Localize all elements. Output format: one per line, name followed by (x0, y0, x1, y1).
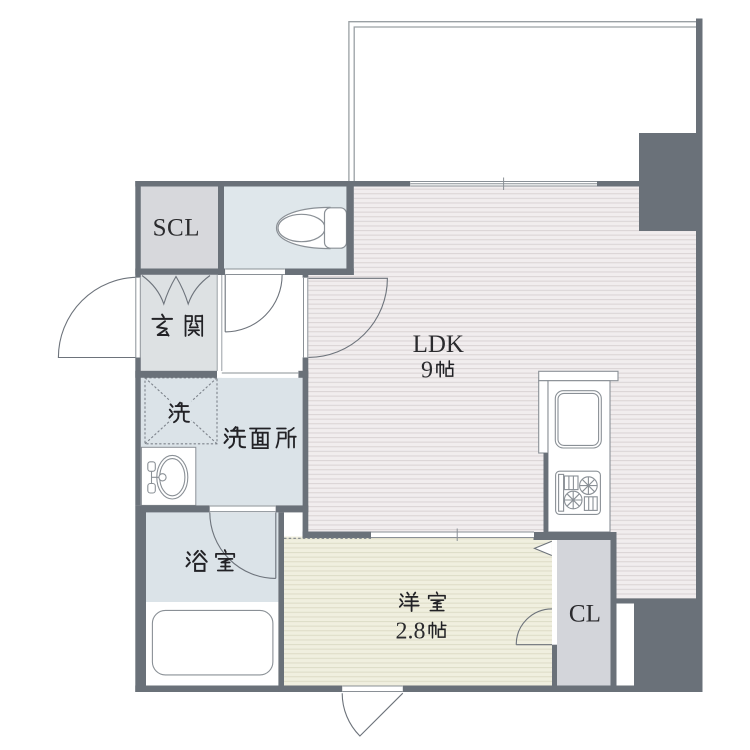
svg-text:9: 9 (421, 358, 433, 384)
svg-text:LDK: LDK (413, 331, 464, 358)
svg-text:SCL: SCL (153, 215, 200, 242)
svg-text:2.8: 2.8 (396, 619, 426, 645)
svg-text:CL: CL (569, 601, 601, 628)
